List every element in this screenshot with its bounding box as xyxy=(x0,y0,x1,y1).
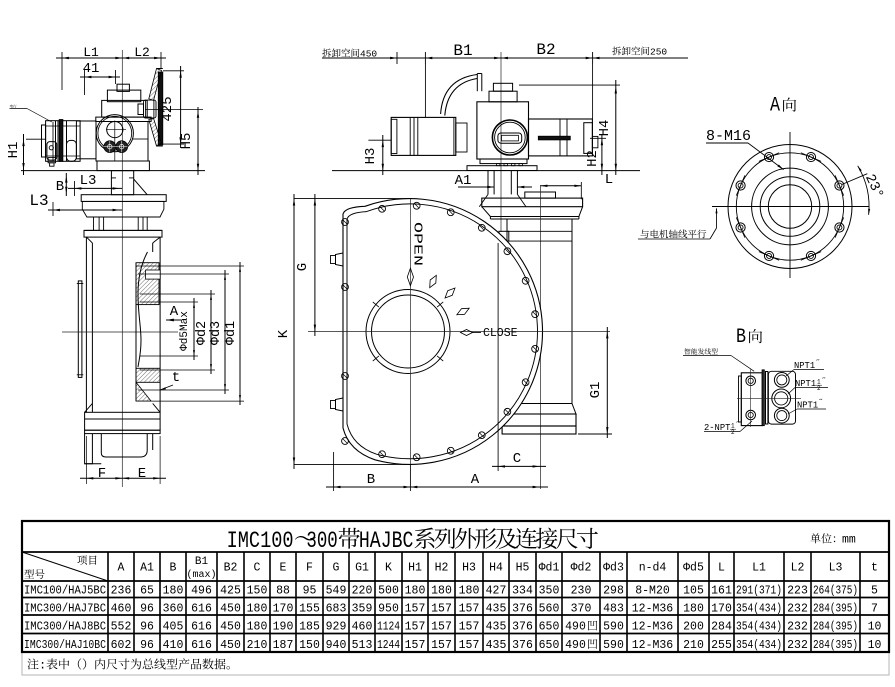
svg-text:L3: L3 xyxy=(80,173,97,189)
svg-text:F: F xyxy=(306,562,313,575)
svg-text:˝: ˝ xyxy=(816,359,821,369)
svg-text:L2: L2 xyxy=(134,45,150,60)
svg-text:H5: H5 xyxy=(179,133,195,150)
svg-text:549: 549 xyxy=(326,585,347,598)
svg-text:12-M36: 12-M36 xyxy=(632,639,674,652)
svg-text:B: B xyxy=(170,562,177,575)
svg-text:180: 180 xyxy=(163,585,184,598)
svg-text:150: 150 xyxy=(299,639,320,652)
svg-text:150: 150 xyxy=(247,585,268,598)
svg-text:180: 180 xyxy=(683,603,704,616)
svg-text:483: 483 xyxy=(603,603,624,616)
svg-text:F: F xyxy=(98,466,106,482)
svg-text:410: 410 xyxy=(163,639,184,652)
svg-text:CLOSE: CLOSE xyxy=(483,327,518,340)
svg-text:A: A xyxy=(170,304,179,320)
svg-text:157: 157 xyxy=(431,639,452,652)
svg-text:G1: G1 xyxy=(588,382,604,399)
svg-text:232: 232 xyxy=(787,639,808,652)
svg-text:170: 170 xyxy=(273,603,294,616)
svg-text:513: 513 xyxy=(352,639,373,652)
svg-text:C: C xyxy=(254,562,261,575)
svg-text:360: 360 xyxy=(163,603,184,616)
svg-text:Φd1: Φd1 xyxy=(224,321,239,345)
svg-text:B1: B1 xyxy=(453,42,472,60)
svg-text:210: 210 xyxy=(247,639,268,652)
svg-text:264(375): 264(375) xyxy=(813,585,858,598)
svg-text:12-M36: 12-M36 xyxy=(632,603,674,616)
svg-text:L3: L3 xyxy=(829,562,843,575)
svg-text:HAJBC: HAJBC xyxy=(359,528,414,554)
svg-text:236: 236 xyxy=(111,585,132,598)
svg-text:450: 450 xyxy=(360,49,377,60)
svg-text:C: C xyxy=(513,451,521,467)
svg-text:2: 2 xyxy=(731,429,735,436)
svg-text:96: 96 xyxy=(140,621,154,634)
svg-text:1124: 1124 xyxy=(377,621,400,634)
svg-text:161: 161 xyxy=(711,585,732,598)
svg-text:H3: H3 xyxy=(462,562,476,575)
svg-text:616: 616 xyxy=(191,603,212,616)
svg-text:250: 250 xyxy=(650,47,667,58)
svg-text:190: 190 xyxy=(273,621,294,634)
svg-text:H1: H1 xyxy=(6,142,22,159)
svg-text:H4: H4 xyxy=(597,120,613,137)
svg-text:255: 255 xyxy=(711,639,732,652)
svg-text:354(434): 354(434) xyxy=(736,621,782,634)
svg-text:940: 940 xyxy=(326,639,347,652)
svg-text:8-M20: 8-M20 xyxy=(635,585,670,598)
svg-text:E: E xyxy=(138,466,146,482)
svg-text:157: 157 xyxy=(459,639,480,652)
svg-text:232: 232 xyxy=(787,621,808,634)
svg-text:mm: mm xyxy=(842,534,856,547)
svg-text:IMC100: IMC100 xyxy=(227,528,294,554)
svg-text:650: 650 xyxy=(539,621,560,634)
svg-text:616: 616 xyxy=(191,621,212,634)
svg-text:427: 427 xyxy=(486,585,507,598)
svg-text:185: 185 xyxy=(299,621,320,634)
svg-text:223: 223 xyxy=(787,585,808,598)
svg-text:300: 300 xyxy=(306,528,337,554)
svg-text:155: 155 xyxy=(299,603,320,616)
svg-text:n-d4: n-d4 xyxy=(639,562,667,575)
svg-text:435: 435 xyxy=(486,639,507,652)
svg-text:180: 180 xyxy=(459,585,480,598)
svg-text:7: 7 xyxy=(871,603,878,616)
svg-text:5: 5 xyxy=(871,585,878,598)
svg-text:88: 88 xyxy=(276,585,290,598)
svg-text:602: 602 xyxy=(111,639,132,652)
svg-text:A: A xyxy=(471,472,480,488)
svg-text:435: 435 xyxy=(486,621,507,634)
svg-text:180: 180 xyxy=(247,603,268,616)
svg-text:157: 157 xyxy=(405,603,426,616)
svg-text:220: 220 xyxy=(352,585,373,598)
svg-text:157: 157 xyxy=(459,603,480,616)
svg-text:187: 187 xyxy=(273,639,294,652)
svg-text:96: 96 xyxy=(140,639,154,652)
svg-text:10: 10 xyxy=(868,639,882,652)
svg-text:41: 41 xyxy=(83,61,100,77)
svg-text:334: 334 xyxy=(512,585,533,598)
svg-text:425: 425 xyxy=(160,96,176,121)
svg-text:IMC300/HAJ8BC: IMC300/HAJ8BC xyxy=(24,621,106,634)
svg-text:560: 560 xyxy=(539,603,560,616)
svg-text:B: B xyxy=(367,472,375,488)
svg-text:10: 10 xyxy=(868,621,882,634)
svg-text:500: 500 xyxy=(378,585,399,598)
svg-text:230: 230 xyxy=(571,585,592,598)
svg-text:H1: H1 xyxy=(408,562,422,575)
svg-text:K: K xyxy=(276,329,292,338)
svg-text:A: A xyxy=(118,562,125,575)
svg-text:L2: L2 xyxy=(791,562,805,575)
svg-text:929: 929 xyxy=(326,621,347,634)
svg-text:157: 157 xyxy=(431,621,452,634)
svg-text:L: L xyxy=(718,562,725,575)
svg-text:490: 490 xyxy=(565,639,586,652)
svg-text:L1: L1 xyxy=(752,562,766,575)
svg-text:2: 2 xyxy=(817,385,821,392)
svg-text:L3: L3 xyxy=(29,192,48,210)
svg-text:590: 590 xyxy=(603,621,624,634)
svg-text:105: 105 xyxy=(683,585,704,598)
svg-text::: : xyxy=(39,659,46,673)
svg-text:Φd2: Φd2 xyxy=(571,562,592,575)
svg-text:Φd5Max: Φd5Max xyxy=(179,311,191,351)
svg-text:354(434): 354(434) xyxy=(736,603,782,616)
svg-text:157: 157 xyxy=(405,639,426,652)
svg-text:350: 350 xyxy=(539,585,560,598)
svg-text:A1: A1 xyxy=(140,562,154,575)
svg-text:496: 496 xyxy=(191,585,212,598)
svg-text:t: t xyxy=(172,370,180,386)
svg-text:435: 435 xyxy=(486,603,507,616)
svg-text:425: 425 xyxy=(220,585,241,598)
svg-text:H2: H2 xyxy=(585,150,601,167)
svg-text:96: 96 xyxy=(140,603,154,616)
svg-text:291(371): 291(371) xyxy=(736,585,782,598)
svg-text:683: 683 xyxy=(326,603,347,616)
svg-text:450: 450 xyxy=(220,639,241,652)
svg-text:376: 376 xyxy=(512,621,533,634)
svg-text:G: G xyxy=(295,263,311,271)
svg-text:180: 180 xyxy=(247,621,268,634)
svg-text:157: 157 xyxy=(405,621,426,634)
svg-text:298: 298 xyxy=(603,585,624,598)
svg-text:(max): (max) xyxy=(186,569,216,581)
svg-text:˝: ˝ xyxy=(736,421,741,431)
svg-text:Φd5: Φd5 xyxy=(683,562,704,575)
svg-text:1244: 1244 xyxy=(377,639,400,652)
svg-text:t: t xyxy=(871,562,878,575)
svg-text:376: 376 xyxy=(512,603,533,616)
svg-text:H4: H4 xyxy=(489,562,503,575)
svg-text:170: 170 xyxy=(711,603,732,616)
svg-text:616: 616 xyxy=(191,639,212,652)
svg-text:˝: ˝ xyxy=(819,399,824,409)
svg-text:H5: H5 xyxy=(516,562,530,575)
svg-text:˝: ˝ xyxy=(822,377,827,387)
svg-text:B: B xyxy=(56,179,64,195)
svg-text:284: 284 xyxy=(711,621,732,634)
svg-text:G: G xyxy=(333,562,340,575)
svg-text:210: 210 xyxy=(683,639,704,652)
svg-text:180: 180 xyxy=(405,585,426,598)
svg-text:G1: G1 xyxy=(355,562,369,575)
svg-text:232: 232 xyxy=(787,603,808,616)
svg-text:157: 157 xyxy=(459,621,480,634)
svg-text:H2: H2 xyxy=(435,562,449,575)
svg-text:B2: B2 xyxy=(536,41,555,59)
svg-text:650: 650 xyxy=(539,639,560,652)
svg-text:284(395): 284(395) xyxy=(813,621,858,634)
svg-text:B1: B1 xyxy=(195,556,209,568)
svg-text:B: B xyxy=(736,326,746,349)
svg-text:284(395): 284(395) xyxy=(813,603,858,616)
svg-text:12-M36: 12-M36 xyxy=(632,621,674,634)
svg-text:950: 950 xyxy=(378,603,399,616)
svg-text:E: E xyxy=(280,562,287,575)
svg-text:Φd3: Φd3 xyxy=(603,562,624,575)
svg-text:IMC300/HAJ7BC: IMC300/HAJ7BC xyxy=(24,603,106,616)
svg-text:284(395): 284(395) xyxy=(813,639,858,652)
svg-text:8-M16: 8-M16 xyxy=(706,128,751,145)
svg-text:359: 359 xyxy=(352,603,373,616)
svg-text:H3: H3 xyxy=(363,148,379,165)
svg-text:405: 405 xyxy=(163,621,184,634)
svg-text:552: 552 xyxy=(111,621,132,634)
svg-text:590: 590 xyxy=(603,639,624,652)
svg-text:157: 157 xyxy=(431,603,452,616)
svg-text:L: L xyxy=(605,172,613,188)
svg-text:L1: L1 xyxy=(83,45,99,60)
svg-text:95: 95 xyxy=(303,585,317,598)
svg-text:460: 460 xyxy=(111,603,132,616)
svg-text:Φd3: Φd3 xyxy=(209,321,224,345)
svg-text:OPEN: OPEN xyxy=(411,222,424,266)
svg-text:180: 180 xyxy=(431,585,452,598)
svg-text:450: 450 xyxy=(220,621,241,634)
svg-text:65: 65 xyxy=(140,585,154,598)
svg-text:IMC300/HAJ10BC: IMC300/HAJ10BC xyxy=(24,639,106,652)
svg-text:450: 450 xyxy=(220,603,241,616)
svg-text:354(434): 354(434) xyxy=(736,639,782,652)
svg-text:370: 370 xyxy=(571,603,592,616)
svg-text:200: 200 xyxy=(683,621,704,634)
svg-text:376: 376 xyxy=(512,639,533,652)
svg-text:IMC100/HAJ5BC: IMC100/HAJ5BC xyxy=(24,585,106,598)
svg-text:Φd2: Φd2 xyxy=(195,321,210,345)
svg-text:Φd1: Φd1 xyxy=(539,562,560,575)
svg-text:460: 460 xyxy=(352,621,373,634)
svg-text:A: A xyxy=(770,95,780,118)
svg-text:K: K xyxy=(385,562,392,575)
svg-text:490: 490 xyxy=(565,621,586,634)
svg-text:B2: B2 xyxy=(224,562,238,575)
